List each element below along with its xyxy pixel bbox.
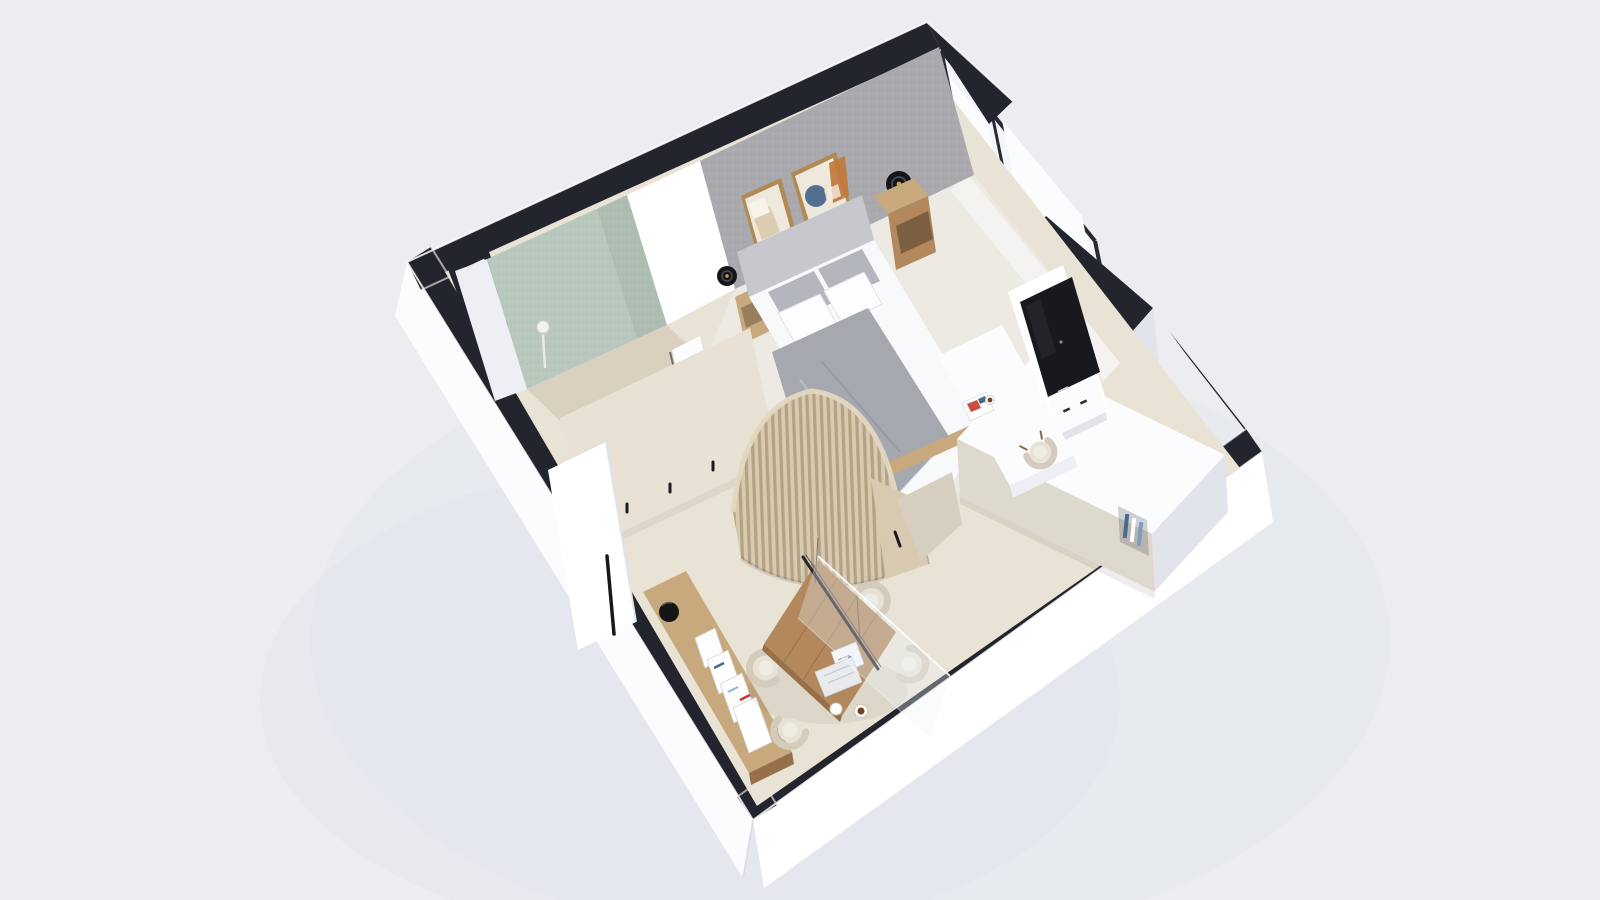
desk-coffee-cup (986, 396, 995, 405)
wall-sconce-left (717, 266, 737, 286)
floorplan-render (0, 0, 1600, 900)
